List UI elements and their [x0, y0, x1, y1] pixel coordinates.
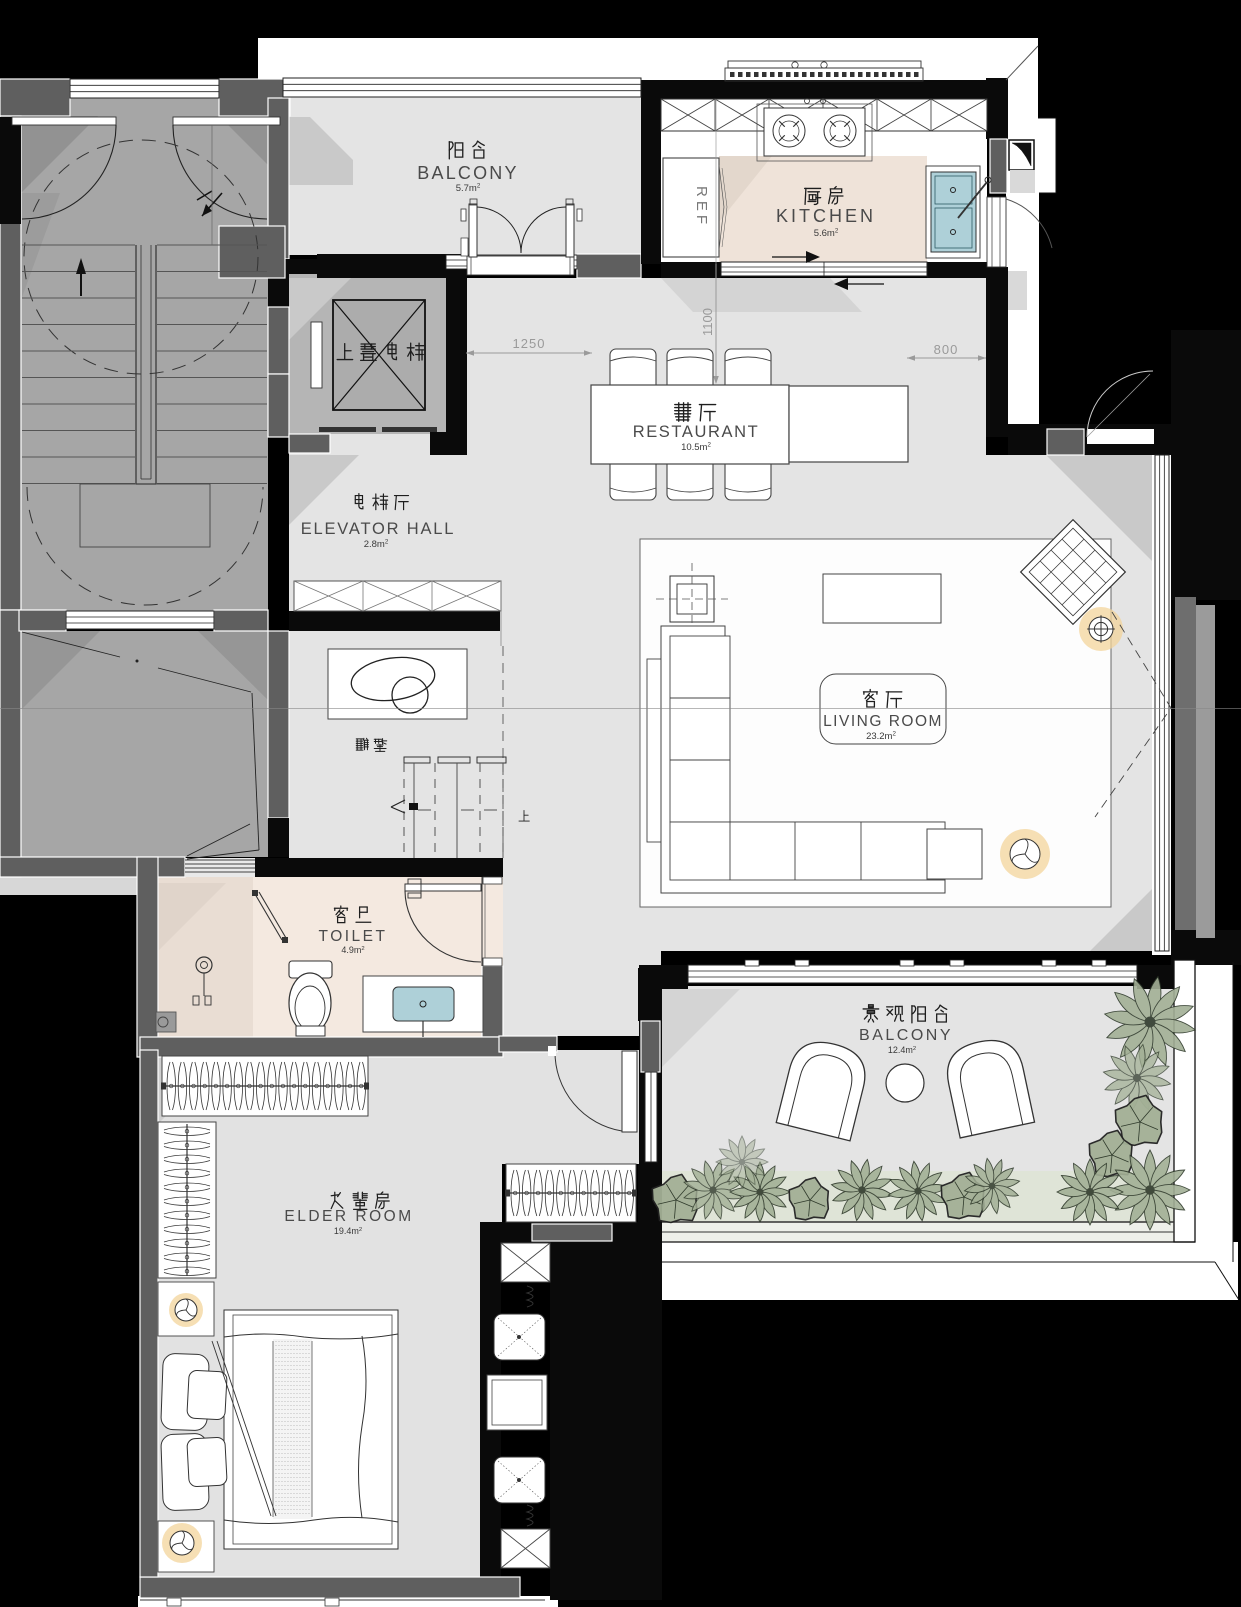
- svg-text:1100: 1100: [700, 308, 715, 336]
- svg-text:ELEVATOR HALL: ELEVATOR HALL: [301, 520, 456, 538]
- svg-text:REF: REF: [693, 186, 710, 228]
- svg-text:800: 800: [934, 342, 959, 357]
- svg-text:LIVING ROOM: LIVING ROOM: [823, 713, 943, 730]
- svg-text:23.2m2: 23.2m2: [866, 731, 896, 742]
- svg-text:10.5m2: 10.5m2: [681, 442, 711, 453]
- svg-text:1250: 1250: [513, 336, 546, 351]
- svg-text:19.4m2: 19.4m2: [334, 1226, 362, 1236]
- svg-text:BALCONY: BALCONY: [417, 163, 518, 183]
- svg-text:BALCONY: BALCONY: [859, 1027, 953, 1044]
- svg-text:TOILET: TOILET: [319, 928, 388, 945]
- svg-text:12.4m2: 12.4m2: [888, 1045, 916, 1055]
- svg-text:RESTAURANT: RESTAURANT: [633, 423, 760, 441]
- svg-text:KITCHEN: KITCHEN: [776, 206, 876, 226]
- svg-text:ELDER ROOM: ELDER ROOM: [284, 1208, 413, 1225]
- svg-text:4.9m2: 4.9m2: [341, 945, 364, 955]
